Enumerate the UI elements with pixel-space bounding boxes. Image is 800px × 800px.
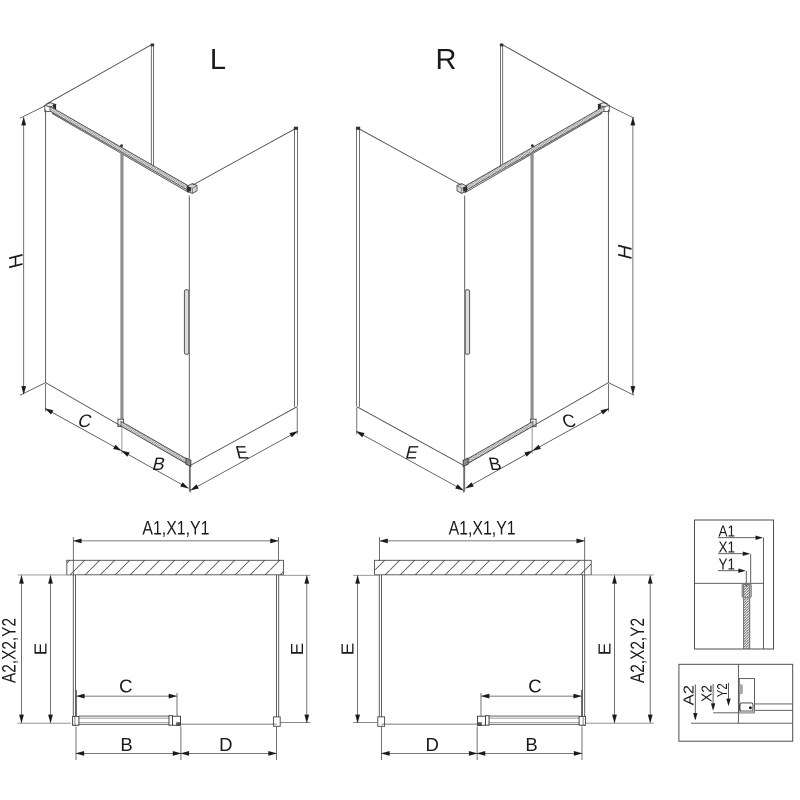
svg-text:R: R	[436, 44, 457, 76]
svg-text:B: B	[120, 734, 132, 755]
svg-text:A2,X2,Y2: A2,X2,Y2	[0, 618, 21, 683]
svg-text:A1,X1,Y1: A1,X1,Y1	[142, 518, 209, 540]
svg-text:L: L	[210, 44, 226, 76]
svg-text:C: C	[528, 675, 541, 696]
svg-text:E: E	[31, 643, 51, 656]
svg-text:E: E	[595, 643, 615, 656]
svg-text:B: B	[525, 734, 537, 755]
svg-text:A2,X2,Y2: A2,X2,Y2	[627, 618, 649, 683]
svg-text:E: E	[338, 643, 358, 656]
svg-text:D: D	[219, 734, 232, 755]
svg-text:D: D	[426, 734, 439, 755]
svg-text:E: E	[287, 643, 307, 656]
svg-text:C: C	[119, 675, 132, 696]
svg-text:A1,X1,Y1: A1,X1,Y1	[449, 518, 516, 540]
